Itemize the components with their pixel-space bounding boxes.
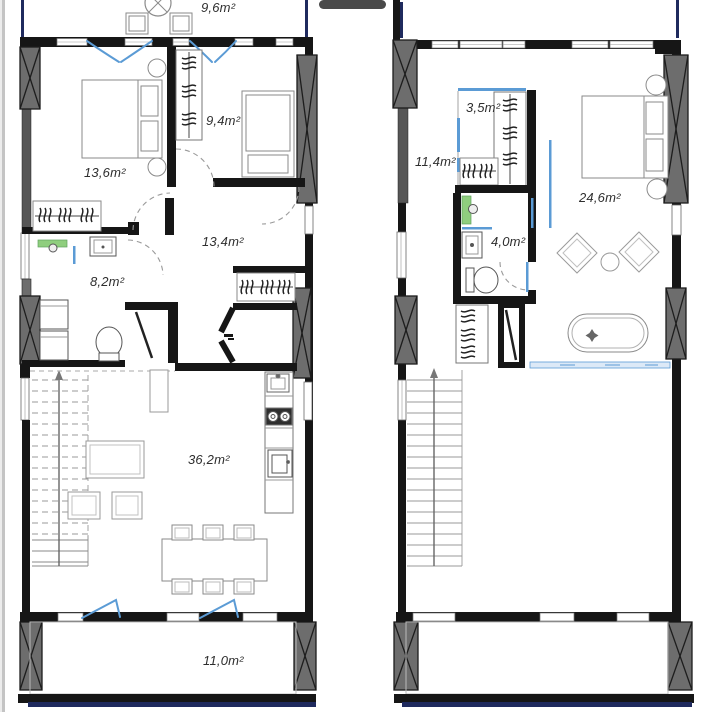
wardrobe-lower [456, 305, 488, 363]
balcony-bottom-right-plan [394, 622, 694, 707]
toilet-icon [466, 267, 498, 293]
stairs-right-plan [407, 368, 462, 566]
washing-machines [40, 300, 68, 360]
room-label-terrace: 9,6m² [201, 1, 235, 14]
toilet-icon [96, 327, 122, 361]
tile-edge-blue [530, 362, 670, 368]
side-table-icon [601, 253, 619, 271]
room-label-bathroom-right: 4,0m² [491, 235, 525, 248]
sink-icon [462, 232, 482, 258]
room-label-closet: 3,5m² [466, 101, 500, 114]
bathroom-left-fixtures [38, 237, 178, 363]
wall-top-left-plan [20, 37, 313, 62]
dining-table [162, 525, 267, 594]
stairs-up-arrow [55, 370, 63, 380]
room-label-bedroom-large: 13,6m² [84, 166, 126, 179]
lounge-chairs [557, 232, 659, 273]
room-label-living-room: 36,2m² [188, 453, 230, 466]
terrace-top [21, 0, 308, 37]
oven-icon [268, 450, 292, 477]
stove-icon [266, 408, 292, 425]
floor-plan-right [393, 0, 694, 707]
room-label-master-bedroom: 24,6m² [579, 191, 621, 204]
room-label-balcony: 11,0m² [203, 654, 244, 667]
shower-enclosure [498, 302, 525, 368]
wall-top-right-plan [396, 40, 681, 54]
room-label-bedroom-small: 9,4m² [206, 114, 240, 127]
room-label-dressing: 11,4m² [415, 155, 456, 168]
wall-bottom-right-plan [396, 612, 681, 622]
terrace-top-right-plan [393, 0, 679, 40]
wardrobe-top [176, 50, 202, 140]
master-bed [582, 75, 668, 199]
room-label-hallway: 13,4m² [202, 235, 244, 248]
faucet-icon [49, 244, 57, 252]
bathtub-icon [568, 314, 648, 352]
balcony-bottom-left-plan [18, 622, 316, 707]
room-label-bathroom-left: 8,2m² [90, 275, 124, 288]
double-bed [82, 59, 166, 176]
clothes-rail-bedroom [33, 201, 101, 231]
floor-plan-left [18, 0, 317, 707]
wall-bottom-living [20, 600, 313, 622]
living-room-furniture [68, 370, 168, 519]
stairs-up-arrow [430, 368, 438, 378]
faucet-icon [469, 205, 478, 214]
kitchen-counter [265, 372, 293, 513]
floor-plan-graphic [0, 0, 704, 712]
hallway-closet [237, 273, 295, 301]
stairs-left-plan [32, 370, 88, 566]
floor-plan-canvas: 9,6m² 13,6m² 9,4m² 13,4m² 8,2m² 36,2m² 1… [0, 0, 704, 712]
pantry [221, 308, 234, 362]
door-arc [500, 262, 528, 290]
shower-enclosure [125, 302, 178, 363]
single-bed [242, 91, 294, 177]
